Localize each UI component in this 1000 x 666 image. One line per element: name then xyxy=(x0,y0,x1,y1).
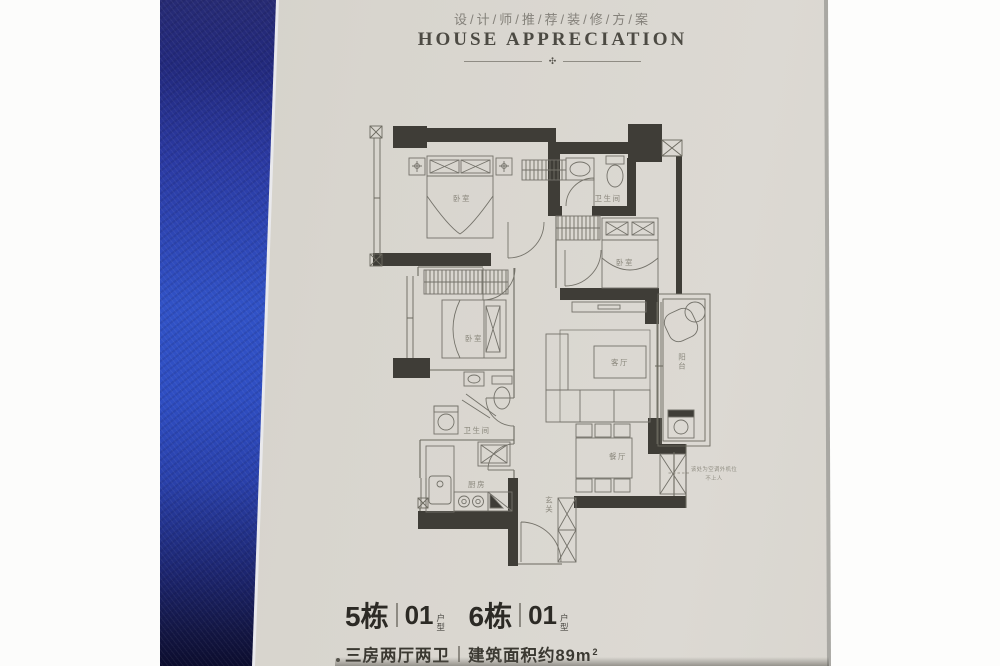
toilet-icon xyxy=(492,376,512,409)
sink-icon xyxy=(566,158,594,180)
room-label-bedroom-right: 卧室 xyxy=(616,257,634,267)
footer: 5栋 01 户型 6栋 01 户型 三房两厅两卫 建筑面积约89m2 xyxy=(345,595,599,666)
ac-note-line2: 不上人 xyxy=(705,474,723,482)
toilet-icon xyxy=(606,156,624,187)
ac-note-line1: 该处为空调外机位 xyxy=(691,465,738,473)
bed-mid-icon xyxy=(442,300,506,358)
sink-icon xyxy=(464,372,484,386)
door-entrance xyxy=(521,522,561,562)
header-title-cn: 设/计/师/推/荐/装/修/方/案 xyxy=(277,9,828,28)
background-left xyxy=(0,0,165,666)
nightstand-icon xyxy=(409,158,425,175)
room-label-kitchen: 厨房 xyxy=(468,479,486,489)
door-bathroom-top xyxy=(566,178,594,206)
kitchen-counter xyxy=(426,446,454,512)
tv-bench-icon xyxy=(572,302,646,312)
door-bedroom-right xyxy=(565,250,601,286)
stove-icon xyxy=(454,492,488,511)
room-label-bedroom-mid: 卧室 xyxy=(465,333,483,343)
kitchen-sink-icon xyxy=(429,476,451,504)
washing-machine-icon xyxy=(668,410,694,438)
divider-bar xyxy=(519,603,521,627)
building-6-label: 6栋 xyxy=(469,595,513,635)
unit-01-label: 01 xyxy=(405,600,434,631)
ac-platform-icon xyxy=(660,454,686,494)
washing-machine-icon xyxy=(434,406,458,434)
building-5-label: 5栋 xyxy=(345,595,389,635)
header-divider: ✣ xyxy=(277,57,828,66)
divider-line-right xyxy=(563,61,641,62)
photo-scene: 设/计/师/推/荐/装/修/方/案 HOUSE APPRECIATION ✣ xyxy=(0,0,1000,666)
room-label-entrance: 玄关 xyxy=(544,495,553,514)
room-label-balcony: 阳台 xyxy=(678,353,687,371)
unit-suffix: 户型 xyxy=(437,614,447,632)
ink-dot xyxy=(336,658,340,662)
door-bedroom-master xyxy=(508,222,544,258)
room-label-bathroom-mid: 卫生间 xyxy=(464,425,491,435)
room-label-living: 客厅 xyxy=(611,357,629,367)
nightstand-icon xyxy=(496,158,512,175)
room-label-dining: 餐厅 xyxy=(609,452,627,461)
floor-plan: 卧室 卫生间 卧室 卧室 客厅 阳台 卫生间 餐厅 厨房 玄关 该处为空调外机位… xyxy=(368,118,748,578)
room-label-bathroom-top: 卫生间 xyxy=(595,193,622,203)
header-title-en: HOUSE APPRECIATION xyxy=(277,29,828,51)
divider-line-left xyxy=(464,61,542,62)
unit-line: 5栋 01 户型 6栋 01 户型 xyxy=(345,595,599,635)
window-bed1 xyxy=(374,138,380,258)
room-label-bedroom-master: 卧室 xyxy=(453,193,471,203)
page-bottom-shadow xyxy=(335,657,829,666)
bed-right-icon xyxy=(602,218,658,288)
window-bed3 xyxy=(407,276,413,358)
rug xyxy=(560,330,650,422)
balcony-chair-icon xyxy=(661,302,705,345)
entry-cabinet xyxy=(558,498,576,562)
unit-01-label: 01 xyxy=(528,600,557,631)
divider-ornament-icon: ✣ xyxy=(549,57,557,66)
divider-bar xyxy=(396,603,398,627)
unit-suffix: 户型 xyxy=(560,614,570,632)
